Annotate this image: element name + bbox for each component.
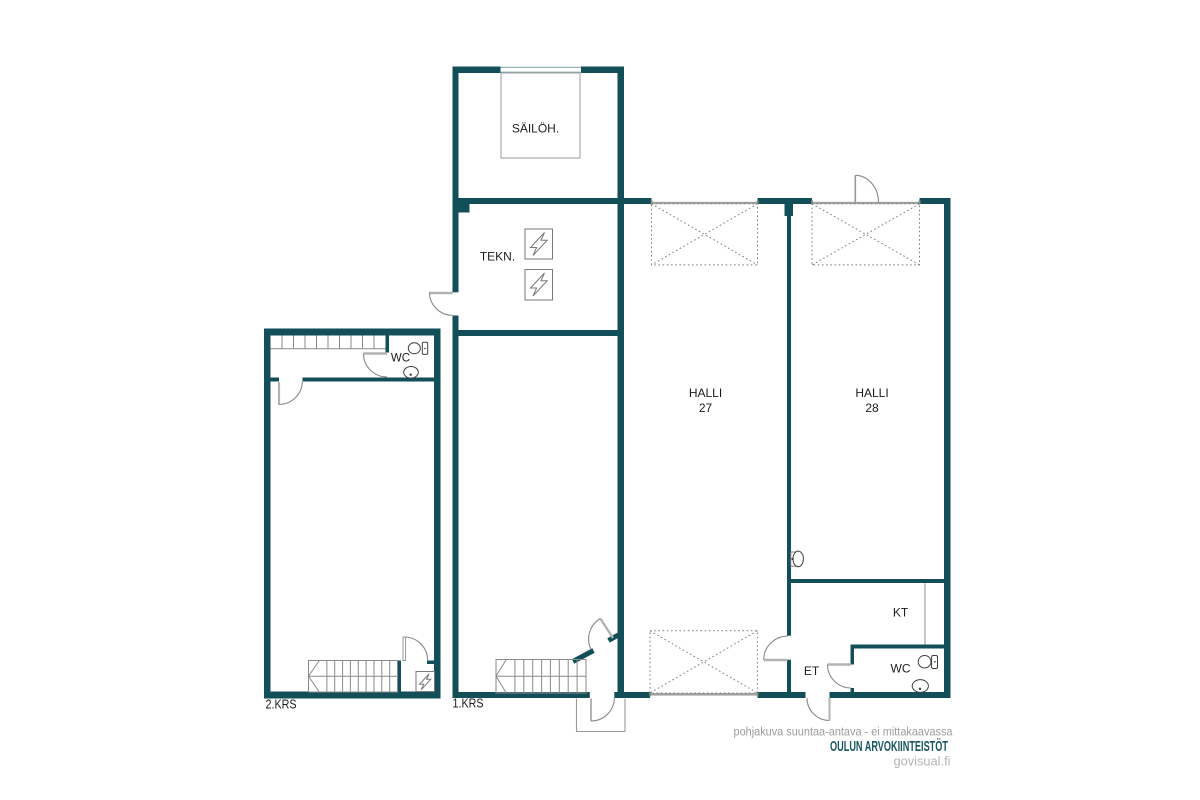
svg-text:WC: WC [391, 353, 410, 365]
svg-text:27: 27 [699, 401, 713, 415]
svg-text:2.KRS: 2.KRS [266, 698, 297, 712]
svg-text:pohjakuva suuntaa-antava - ei: pohjakuva suuntaa-antava - ei mittakaava… [734, 725, 953, 739]
svg-text:KT: KT [893, 606, 909, 620]
svg-text:ET: ET [804, 664, 820, 678]
svg-text:OULUN ARVOKIINTEISTÖT: OULUN ARVOKIINTEISTÖT [830, 738, 948, 755]
svg-text:SÄILÖH.: SÄILÖH. [512, 122, 559, 136]
svg-text:WC: WC [891, 662, 911, 676]
svg-text:28: 28 [865, 401, 879, 415]
svg-text:HALLI: HALLI [689, 386, 722, 400]
svg-text:govisual.fi: govisual.fi [894, 754, 951, 769]
svg-text:TEKN.: TEKN. [480, 249, 515, 263]
svg-text:HALLI: HALLI [855, 386, 888, 400]
svg-text:1.KRS: 1.KRS [453, 697, 484, 711]
